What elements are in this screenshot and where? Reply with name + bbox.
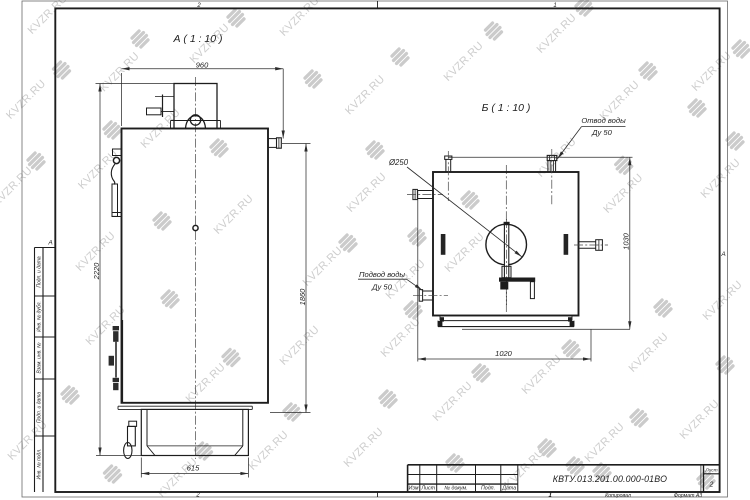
svg-text:2: 2 [709,482,714,489]
svg-text:Взам. инв. №: Взам. инв. № [37,342,43,374]
svg-text:Формат А3: Формат А3 [674,493,702,499]
svg-text:Лист: Лист [704,467,717,473]
svg-text:2: 2 [195,493,200,499]
svg-text:Инв. № подл.: Инв. № подл. [37,448,43,479]
svg-text:Инв. № дубл.: Инв. № дубл. [37,301,43,332]
svg-text:Б ( 1 : 10 ): Б ( 1 : 10 ) [482,102,531,114]
svg-text:Подп. и дата: Подп. и дата [37,392,43,424]
svg-text:А: А [720,251,725,258]
svg-text:Изм: Изм [409,486,419,492]
svg-text:А ( 1 : 10 ): А ( 1 : 10 ) [172,33,222,45]
svg-text:№ докум.: № докум. [444,486,467,492]
svg-text:Ду 50: Ду 50 [591,128,613,137]
svg-text:Подп.: Подп. [481,486,495,492]
svg-text:КВТУ.013.201.00.000-01ВО: КВТУ.013.201.00.000-01ВО [553,474,667,484]
svg-text:1030: 1030 [621,232,630,250]
svg-text:Ду 50: Ду 50 [371,282,393,291]
svg-text:1: 1 [549,493,552,499]
svg-text:Дата: Дата [501,486,516,492]
svg-text:Лист: Лист [420,486,435,492]
svg-text:Отвод воды: Отвод воды [581,116,626,125]
svg-text:Подвод воды: Подвод воды [359,270,405,279]
svg-text:Копировал: Копировал [605,493,631,499]
svg-text:1: 1 [553,3,556,9]
svg-text:2: 2 [196,3,201,9]
svg-text:1860: 1860 [298,288,307,306]
svg-text:Подп. и дата: Подп. и дата [37,256,43,288]
svg-text:1020: 1020 [495,349,513,358]
svg-text:615: 615 [187,464,200,473]
svg-text:А: А [47,240,52,247]
svg-text:2220: 2220 [92,262,101,281]
svg-text:960: 960 [196,60,209,69]
svg-text:Ø250: Ø250 [388,158,409,167]
